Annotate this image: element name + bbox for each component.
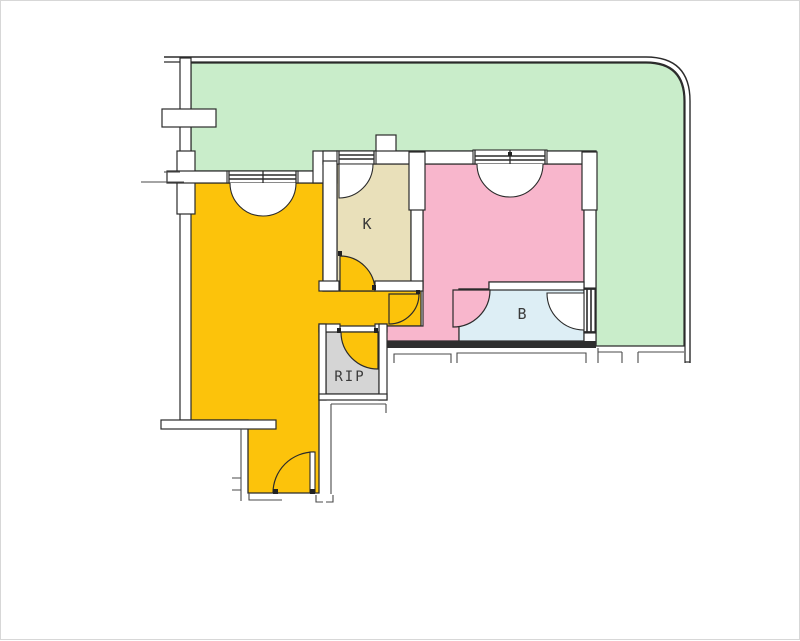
kitchen-window-frame: [337, 151, 376, 164]
neighbor-wall-ticks: [232, 478, 241, 490]
storage-door-dot-1: [337, 328, 341, 333]
corridor-outline: [331, 404, 386, 494]
floorplan-canvas: K B RIP: [0, 0, 800, 640]
lower-neighbor-wall-2: [457, 353, 586, 363]
wall-kitchen-bottom-right: [375, 281, 423, 291]
wall-bathroom-top: [489, 282, 584, 290]
kitchen-door-dot-2: [372, 285, 376, 290]
wall-storage-right: [379, 324, 387, 400]
storage-door-dot-2: [374, 328, 378, 333]
wall-bottom-stub: [161, 420, 276, 429]
pillar-kitchen-top: [409, 152, 425, 210]
wall-left-stub: [162, 109, 216, 127]
entry-door-dot-1: [273, 489, 278, 494]
kitchen-door-dot-1: [338, 251, 342, 256]
entry-threshold-left: [249, 493, 282, 500]
kitchen-label: K: [362, 215, 371, 233]
bedroom-window-latch-dot: [508, 152, 512, 156]
bathroom-label: B: [517, 305, 526, 323]
lower-neighbor-wall-1: [394, 354, 451, 363]
lower-neighbor-wall-4: [598, 352, 622, 363]
lower-neighbor-wall-5: [638, 352, 684, 363]
pillar-bedroom-top: [582, 152, 597, 210]
wall-storage-left: [319, 324, 326, 400]
wall-bathroom-bottom-thick: [387, 341, 596, 348]
bathroom-window-frame: [584, 288, 595, 333]
entry-door-leaf: [310, 452, 315, 493]
wall-kitchen-bottom-left: [319, 281, 339, 291]
entry-door-dot-2: [310, 489, 315, 494]
wall-storage-bottom: [319, 394, 387, 400]
storage-label: RIP: [334, 369, 365, 385]
hallway-door-dot: [416, 290, 420, 294]
entry-threshold-right: [316, 495, 333, 502]
chimney-block: [376, 135, 396, 153]
wall-kitchen-left: [323, 161, 337, 291]
floorplan-drawing: K B RIP: [1, 1, 800, 641]
